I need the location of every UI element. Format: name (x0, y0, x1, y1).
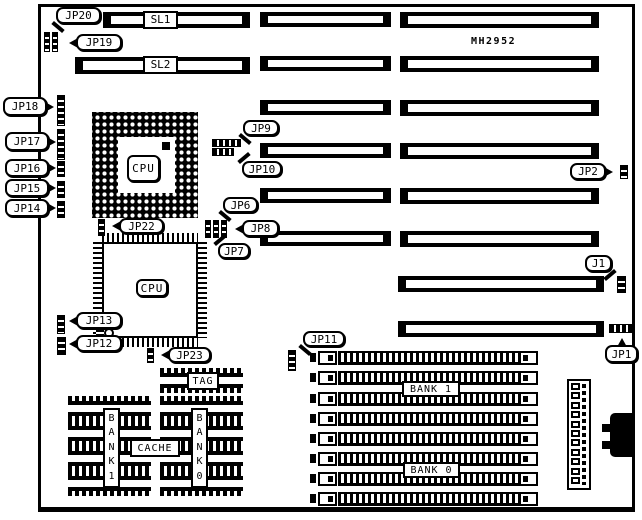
slot-label-sl1: SL1 (143, 11, 178, 29)
callout-jp8: JP8 (242, 220, 279, 237)
jumper-block-jp16 (57, 161, 65, 177)
expansion-slot-right-4 (400, 143, 599, 159)
jumper-block-jp1 (609, 324, 633, 333)
callout-jp23: JP23 (168, 347, 211, 363)
power-pin (571, 402, 580, 409)
jumper-block-jp19-20-a (44, 32, 50, 52)
callout-jp15: JP15 (5, 179, 49, 197)
keyboard-connector-tab (602, 424, 611, 432)
callout-jp12: JP12 (76, 335, 122, 352)
simm-socket-4 (310, 412, 538, 426)
callout-jp1: JP1 (605, 345, 638, 363)
jumper-block-jp2 (620, 165, 628, 179)
power-pin (571, 458, 580, 465)
jumper-block-jp12 (57, 337, 66, 355)
expansion-slot-right-6 (400, 231, 599, 247)
simm-socket-5 (310, 432, 538, 446)
simm-socket-1 (310, 351, 538, 365)
expansion-slot-right-5 (400, 188, 599, 204)
callout-jp16: JP16 (5, 159, 49, 177)
slot-label-sl2: SL2 (143, 56, 178, 74)
callout-jp6: JP6 (223, 197, 258, 213)
chip-label-dip-bank1: B A N K 1 (103, 408, 120, 488)
power-connector (567, 379, 591, 490)
keyboard-connector-tab (602, 441, 611, 449)
expansion-slot-sl1: SL1 (103, 12, 250, 28)
jumper-block-jp10 (212, 148, 234, 156)
power-pin (571, 477, 580, 484)
chip-label-simm-bank1: BANK 1 (402, 381, 460, 397)
jumper-block-jp19-20-b (52, 32, 58, 52)
jumper-block-jp13 (57, 315, 65, 334)
jumper-block-jp678-b (213, 220, 219, 238)
expansion-slot-right-8 (398, 321, 604, 337)
jumper-block-jp678-a (205, 220, 211, 238)
pin1-marker-dot (162, 142, 170, 150)
cpu-label: CPU (127, 155, 160, 182)
motherboard-diagram: MH2952 SL1SL2CPUCPUTAGCACHEB A N K 1B A … (0, 0, 642, 520)
expansion-slot-mid-4 (260, 143, 391, 158)
power-pin (571, 392, 580, 399)
board-model-label: MH2952 (471, 36, 516, 47)
power-pin (571, 421, 580, 428)
callout-jp7: JP7 (218, 243, 250, 259)
jumper-block-jp22 (98, 219, 105, 236)
jumper-block-jp11 (288, 350, 296, 371)
callout-jp13: JP13 (76, 312, 122, 329)
expansion-slot-right-2 (400, 56, 599, 72)
callout-jp17: JP17 (5, 132, 49, 151)
chip-label-cache: CACHE (130, 439, 180, 457)
qfp-pins-top (102, 233, 198, 242)
expansion-slot-mid-1 (260, 12, 391, 27)
callout-jp11: JP11 (303, 331, 345, 347)
keyboard-connector (610, 413, 633, 457)
power-pin (571, 439, 580, 446)
callout-jp20: JP20 (56, 7, 101, 24)
power-pin (571, 430, 580, 437)
cpu-label: CPU (136, 279, 168, 297)
power-pin (571, 411, 580, 418)
power-pin (571, 468, 580, 475)
expansion-slot-sl2: SL2 (75, 57, 250, 74)
jumper-block-jp14 (57, 201, 65, 218)
callout-j1: J1 (585, 255, 612, 272)
jumper-block-jp18 (57, 95, 65, 126)
expansion-slot-mid-2 (260, 56, 391, 71)
callout-jp14: JP14 (5, 199, 49, 217)
power-pin (571, 449, 580, 456)
callout-jp18: JP18 (3, 97, 47, 116)
expansion-slot-mid-5 (260, 188, 391, 203)
expansion-slot-mid-6 (260, 231, 391, 246)
jumper-block-jp9 (212, 139, 241, 147)
callout-jp2: JP2 (570, 163, 606, 180)
jumper-block-jp15 (57, 181, 65, 198)
callout-jp10: JP10 (242, 161, 282, 177)
expansion-slot-mid-3 (260, 100, 391, 115)
chip-label-simm-bank0: BANK 0 (403, 462, 460, 478)
power-pin (571, 383, 580, 390)
callout-jp22: JP22 (119, 218, 164, 234)
callout-jp19: JP19 (76, 34, 122, 51)
expansion-slot-right-1 (400, 12, 599, 28)
qfp-pins-right (198, 242, 207, 338)
expansion-slot-right-3 (400, 100, 599, 116)
expansion-slot-right-7 (398, 276, 604, 292)
callout-jp9: JP9 (243, 120, 279, 136)
chip-label-tag: TAG (187, 372, 219, 390)
jumper-block-j1 (617, 276, 626, 293)
chip-label-dip-bank0: B A N K 0 (191, 408, 208, 488)
power-connector-keys (582, 384, 586, 485)
jumper-block-jp17 (57, 129, 65, 160)
simm-socket-8 (310, 492, 538, 506)
jumper-block-jp23 (147, 348, 154, 363)
